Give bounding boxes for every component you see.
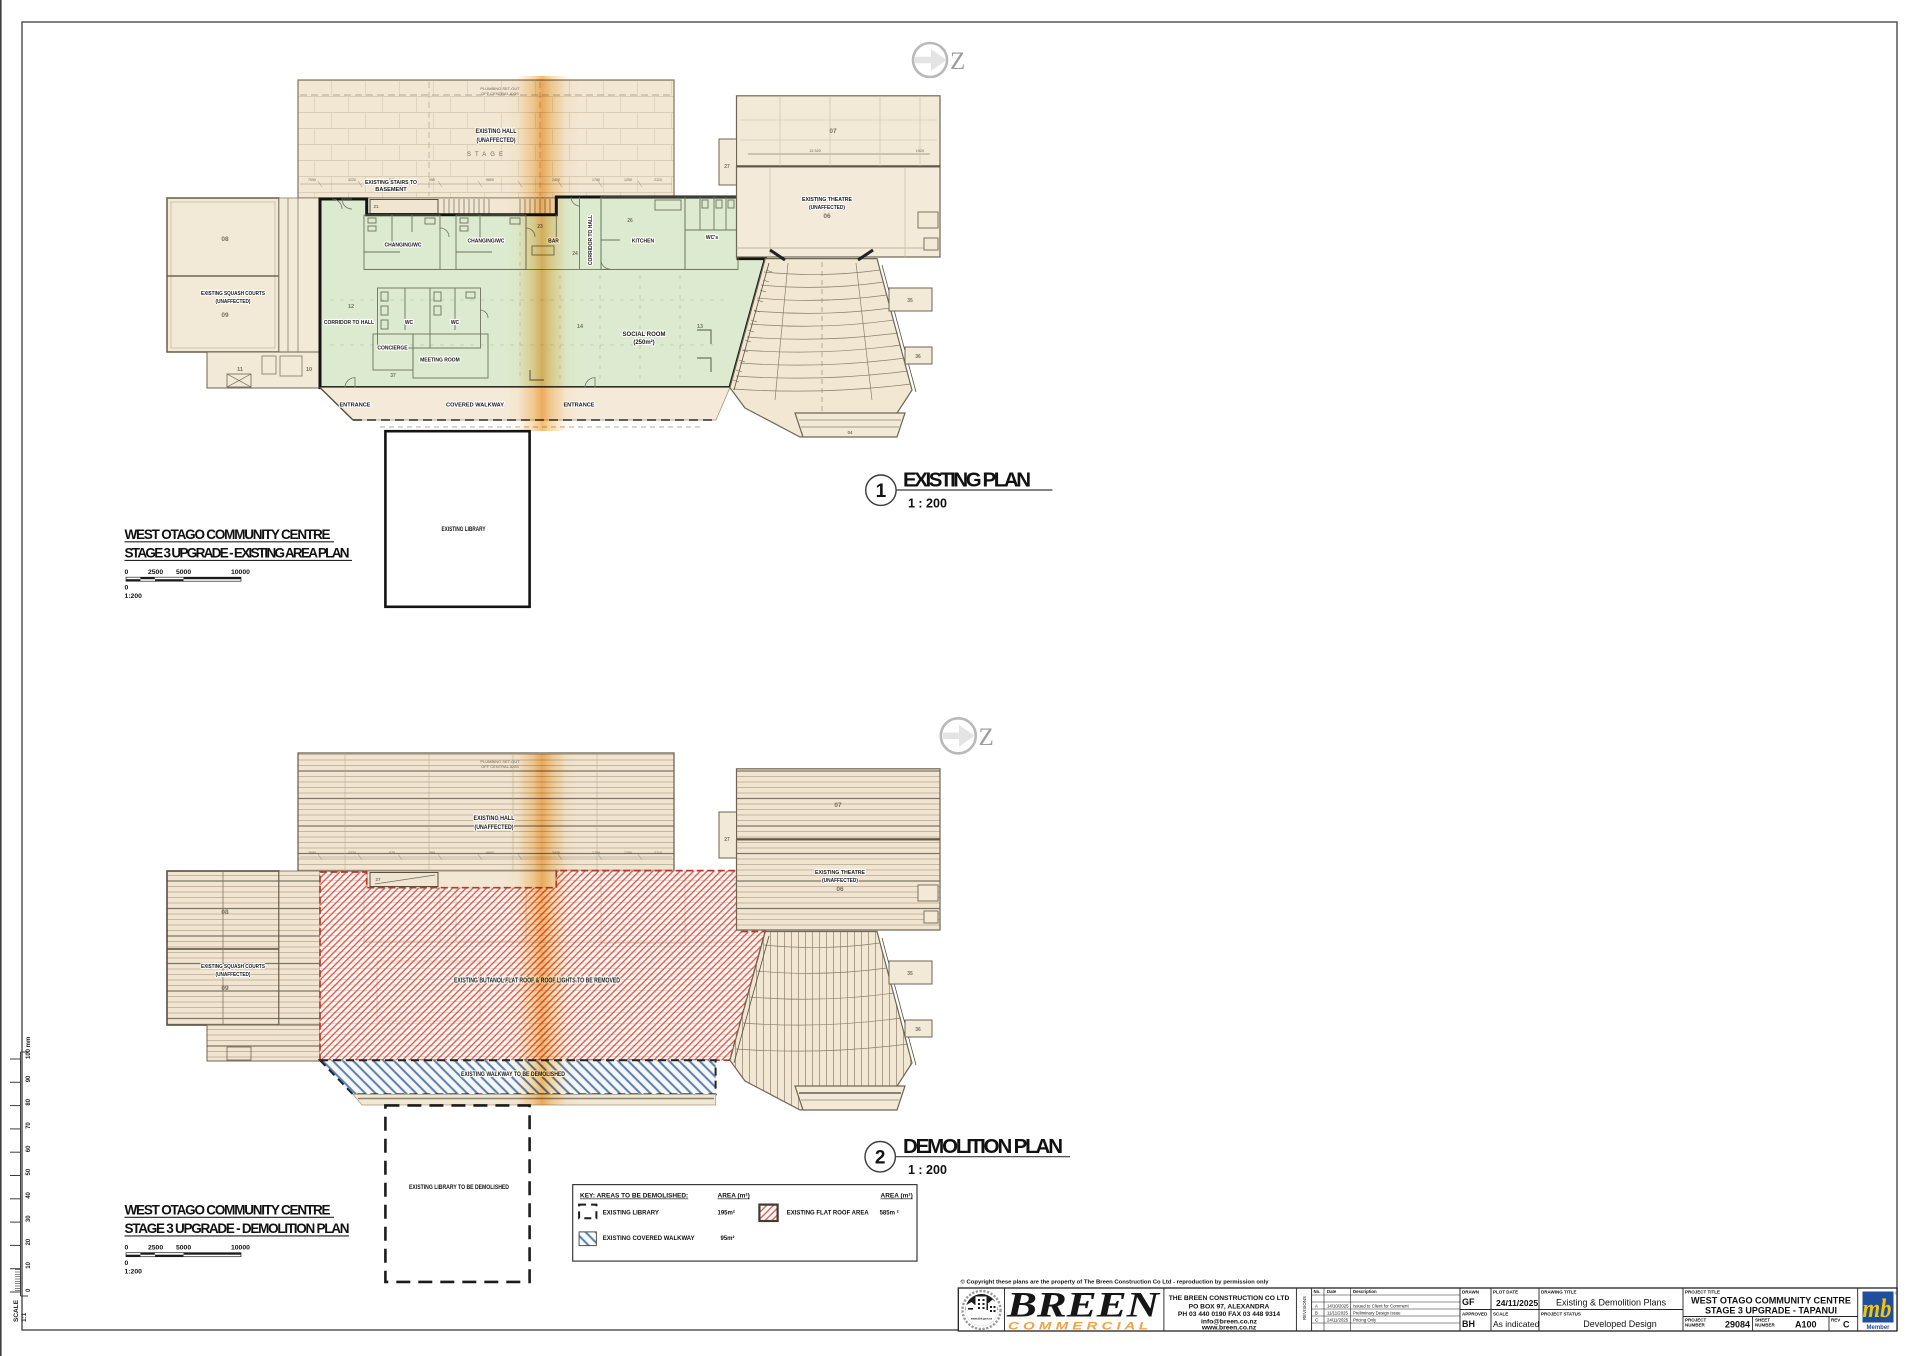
svg-text:THE BREEN CONSTRUCTION CO LTD: THE BREEN CONSTRUCTION CO LTD: [1169, 1295, 1290, 1302]
svg-text:1 : 200: 1 : 200: [908, 1163, 947, 1177]
svg-text:As indicated: As indicated: [1493, 1319, 1540, 1329]
svg-text:1780: 1780: [592, 851, 600, 855]
svg-text:70: 70: [26, 1122, 32, 1129]
svg-text:CHANGING/WC: CHANGING/WC: [385, 243, 422, 249]
svg-text:Date: Date: [1327, 1289, 1337, 1294]
svg-text:STAGE 3 UPGRADE - TAPANUI: STAGE 3 UPGRADE - TAPANUI: [1705, 1306, 1837, 1316]
svg-text:CORRIDOR TO HALL: CORRIDOR TO HALL: [324, 320, 374, 326]
svg-text:BH: BH: [1462, 1319, 1475, 1329]
svg-text:95m²: 95m²: [721, 1235, 735, 1242]
svg-text:Pricing Only: Pricing Only: [1353, 1317, 1377, 1322]
svg-text:11/11/2025: 11/11/2025: [1327, 1310, 1348, 1315]
svg-text:WC: WC: [405, 320, 414, 326]
svg-text:36: 36: [915, 1027, 921, 1033]
svg-text:PLOT DATE: PLOT DATE: [1493, 1290, 1518, 1295]
svg-text:06: 06: [823, 213, 831, 220]
svg-text:A: A: [1315, 1303, 1318, 1308]
svg-text:3220: 3220: [348, 851, 356, 855]
svg-text:PH 03 440 0190 FAX 03 448 931: PH 03 440 0190 FAX 03 448 9314: [1178, 1311, 1281, 1318]
svg-text:C O M M E R C I A L: C O M M E R C I A L: [1008, 1321, 1148, 1333]
svg-text:14/10/2025: 14/10/2025: [1327, 1303, 1349, 1308]
svg-text:100 mm: 100 mm: [26, 1037, 32, 1059]
svg-text:PO BOX 97, ALEXANDRA: PO BOX 97, ALEXANDRA: [1189, 1304, 1270, 1311]
svg-text:EXISTING SQUASH COURTS: EXISTING SQUASH COURTS: [201, 964, 265, 970]
svg-text:CORRIDOR TO HALL: CORRIDOR TO HALL: [588, 215, 594, 265]
svg-text:90: 90: [26, 1075, 32, 1082]
svg-text:WEST OTAGO COMMUNITY CENTRE: WEST OTAGO COMMUNITY CENTRE: [125, 527, 331, 542]
svg-text:5000: 5000: [176, 1245, 191, 1252]
svg-text:27: 27: [724, 837, 730, 843]
svg-text:21: 21: [373, 204, 379, 209]
svg-text:C: C: [1315, 1317, 1318, 1322]
svg-text:07: 07: [834, 802, 842, 809]
svg-text:KEY: AREAS TO BE DEMOLISHED:: KEY: AREAS TO BE DEMOLISHED:: [580, 1193, 688, 1200]
svg-text:STAGE 3 UPGRADE - EXISTING ARE: STAGE 3 UPGRADE - EXISTING AREA PLAN: [125, 546, 350, 561]
svg-text:www.dbh.govt.nz: www.dbh.govt.nz: [971, 1317, 993, 1321]
svg-text:BREEN: BREEN: [1006, 1285, 1162, 1325]
svg-text:08: 08: [221, 236, 229, 243]
svg-text:26: 26: [627, 218, 633, 224]
svg-text:36: 36: [915, 354, 921, 360]
svg-text:DRAWN: DRAWN: [1462, 1290, 1479, 1295]
svg-text:60: 60: [26, 1145, 32, 1152]
svg-text:DEMOLITION PLAN: DEMOLITION PLAN: [903, 1135, 1063, 1158]
svg-text:0: 0: [125, 1260, 129, 1267]
svg-text:2500: 2500: [148, 569, 163, 576]
svg-text:2110: 2110: [654, 178, 662, 182]
svg-text:37: 37: [390, 373, 396, 379]
svg-text:2: 2: [875, 1148, 886, 1169]
svg-text:REV: REV: [1831, 1318, 1840, 1323]
svg-text:WC: WC: [451, 320, 460, 326]
svg-text:1:1: 1:1: [21, 1312, 28, 1322]
svg-text:0: 0: [26, 1288, 32, 1292]
svg-text:REVISIONS: REVISIONS: [1302, 1296, 1307, 1320]
svg-text:2110: 2110: [654, 851, 662, 855]
svg-text:GF: GF: [1462, 1297, 1475, 1307]
svg-text:50: 50: [26, 1168, 32, 1175]
svg-text:DRAWING TITLE: DRAWING TITLE: [1541, 1290, 1577, 1295]
svg-text:40: 40: [26, 1191, 32, 1198]
svg-text:0: 0: [125, 569, 129, 576]
svg-text:195m²: 195m²: [718, 1210, 735, 1217]
svg-text:WEST OTAGO COMMUNITY CENTRE: WEST OTAGO COMMUNITY CENTRE: [1691, 1296, 1851, 1306]
svg-text:EXISTING LIBRARY TO BE DEMOLIS: EXISTING LIBRARY TO BE DEMOLISHED: [409, 1185, 510, 1191]
svg-text:585m ²: 585m ²: [880, 1210, 899, 1217]
svg-text:EXISTING STAIRS TO: EXISTING STAIRS TO: [365, 180, 418, 186]
svg-text:Existing & Demolition Plans: Existing & Demolition Plans: [1556, 1298, 1667, 1308]
svg-text:SCALE: SCALE: [1493, 1312, 1508, 1317]
svg-text:24/11/2025: 24/11/2025: [1327, 1317, 1349, 1322]
svg-text:10: 10: [26, 1261, 32, 1268]
svg-text:EXISTING THEATRE: EXISTING THEATRE: [815, 870, 865, 876]
svg-text:575: 575: [389, 851, 395, 855]
svg-text:2500: 2500: [148, 1245, 163, 1252]
svg-text:EXISTING LIBRARY: EXISTING LIBRARY: [442, 527, 486, 533]
svg-text:KITCHEN: KITCHEN: [632, 239, 655, 245]
svg-text:04: 04: [847, 430, 853, 435]
svg-text:www.breen.co.nz: www.breen.co.nz: [1201, 1325, 1257, 1332]
svg-text:Z: Z: [950, 48, 965, 75]
svg-text:NUMBER: NUMBER: [1685, 1323, 1705, 1328]
svg-text:80: 80: [26, 1098, 32, 1105]
svg-text:EXISTING LIBRARY: EXISTING LIBRARY: [603, 1211, 659, 1217]
svg-text:27: 27: [375, 877, 381, 882]
svg-text:(UNAFFECTED): (UNAFFECTED): [216, 299, 251, 305]
svg-text:Member: Member: [1866, 1325, 1890, 1331]
svg-text:NUMBER: NUMBER: [1755, 1323, 1775, 1328]
svg-text:10: 10: [306, 367, 312, 373]
svg-text:AREA (m²): AREA (m²): [881, 1193, 913, 1200]
svg-text:1250: 1250: [624, 178, 632, 182]
svg-text:24/11/2025: 24/11/2025: [1496, 1298, 1538, 1308]
svg-text:STAGE 3 UPGRADE - DEMOLITION P: STAGE 3 UPGRADE - DEMOLITION PLAN: [125, 1221, 350, 1236]
svg-text:1250: 1250: [624, 851, 632, 855]
svg-text:7090: 7090: [308, 178, 316, 182]
svg-text:STAGE: STAGE: [467, 152, 507, 158]
svg-text:C: C: [1843, 1320, 1850, 1330]
svg-text:(UNAFFECTED): (UNAFFECTED): [822, 878, 858, 884]
svg-text:MEETING ROOM: MEETING ROOM: [420, 358, 460, 364]
svg-text:27: 27: [724, 164, 730, 170]
svg-text:PROJECT STATUS: PROJECT STATUS: [1541, 1312, 1581, 1317]
svg-text:0: 0: [125, 1245, 129, 1252]
svg-text:1780: 1780: [592, 178, 600, 182]
svg-text:950: 950: [429, 178, 435, 182]
svg-text:No.: No.: [1314, 1289, 1321, 1294]
svg-text:29084: 29084: [1725, 1320, 1750, 1330]
svg-text:A100: A100: [1795, 1320, 1817, 1330]
svg-text:13 520: 13 520: [809, 149, 821, 153]
svg-text:12: 12: [348, 304, 354, 310]
svg-text:ENTRANCE: ENTRANCE: [339, 403, 370, 409]
svg-text:1:200: 1:200: [125, 1269, 143, 1276]
svg-text:11: 11: [237, 367, 243, 373]
svg-text:AREA (m²): AREA (m²): [718, 1193, 750, 1200]
svg-text:7090: 7090: [308, 851, 316, 855]
svg-text:30: 30: [26, 1215, 32, 1222]
svg-text:13: 13: [697, 324, 703, 330]
svg-text:WEST OTAGO COMMUNITY CENTRE: WEST OTAGO COMMUNITY CENTRE: [125, 1203, 331, 1218]
svg-text:COVERED WALKWAY: COVERED WALKWAY: [446, 403, 504, 409]
svg-text:APPROVED: APPROVED: [1462, 1312, 1488, 1317]
svg-text:5000: 5000: [176, 569, 191, 576]
svg-text:WC's: WC's: [706, 235, 719, 241]
svg-text:1920: 1920: [916, 149, 924, 153]
svg-text:10000: 10000: [231, 1245, 250, 1252]
svg-text:09: 09: [221, 985, 229, 992]
svg-text:10000: 10000: [231, 569, 250, 576]
svg-text:0: 0: [125, 585, 129, 592]
svg-text:Description: Description: [1353, 1289, 1377, 1294]
svg-text:07: 07: [829, 128, 837, 135]
svg-text:(250m²): (250m²): [633, 339, 654, 346]
svg-text:Z: Z: [979, 724, 994, 751]
svg-text:1 : 200: 1 : 200: [908, 497, 947, 511]
svg-text:SOCIAL ROOM: SOCIAL ROOM: [623, 332, 666, 338]
svg-text:Developed Design: Developed Design: [1583, 1319, 1657, 1329]
svg-text:®: ®: [1895, 1292, 1898, 1296]
svg-text:1:200: 1:200: [125, 593, 143, 600]
svg-text:1: 1: [876, 481, 887, 502]
svg-text:Issued to Client for Comment: Issued to Client for Comment: [1353, 1303, 1409, 1308]
svg-text:EXISTING PLAN: EXISTING PLAN: [903, 469, 1031, 492]
svg-text:EXISTING THEATRE: EXISTING THEATRE: [802, 197, 852, 203]
svg-text:(UNAFFECTED): (UNAFFECTED): [216, 972, 251, 978]
svg-text:Preliminary Design Issue: Preliminary Design Issue: [1353, 1310, 1401, 1315]
svg-text:9600: 9600: [486, 178, 494, 182]
svg-text:EXISTING SQUASH COURTS: EXISTING SQUASH COURTS: [201, 291, 265, 297]
svg-text:950: 950: [429, 851, 435, 855]
svg-text:mb: mb: [1863, 1294, 1892, 1323]
svg-text:CHANGING/WC: CHANGING/WC: [468, 239, 505, 245]
svg-text:EXISTING COVERED WALKWAY: EXISTING COVERED WALKWAY: [603, 1236, 695, 1242]
svg-text:08: 08: [221, 909, 229, 916]
svg-text:BASEMENT: BASEMENT: [375, 187, 407, 193]
svg-text:B: B: [1315, 1310, 1318, 1315]
svg-text:SCALE: SCALE: [13, 1299, 20, 1322]
svg-text:CONCIERGE: CONCIERGE: [377, 346, 408, 352]
svg-text:35: 35: [907, 971, 913, 977]
svg-text:3220: 3220: [348, 178, 356, 182]
svg-text:PROJECT TITLE: PROJECT TITLE: [1685, 1290, 1720, 1295]
svg-text:EXISTING FLAT ROOF AREA: EXISTING FLAT ROOF AREA: [787, 1211, 870, 1217]
svg-text:20: 20: [26, 1238, 32, 1245]
svg-text:(UNAFFECTED): (UNAFFECTED): [809, 205, 845, 211]
svg-text:9600: 9600: [486, 851, 494, 855]
svg-text:09: 09: [221, 312, 229, 319]
svg-text:35: 35: [907, 298, 913, 304]
svg-text:06: 06: [836, 886, 844, 893]
